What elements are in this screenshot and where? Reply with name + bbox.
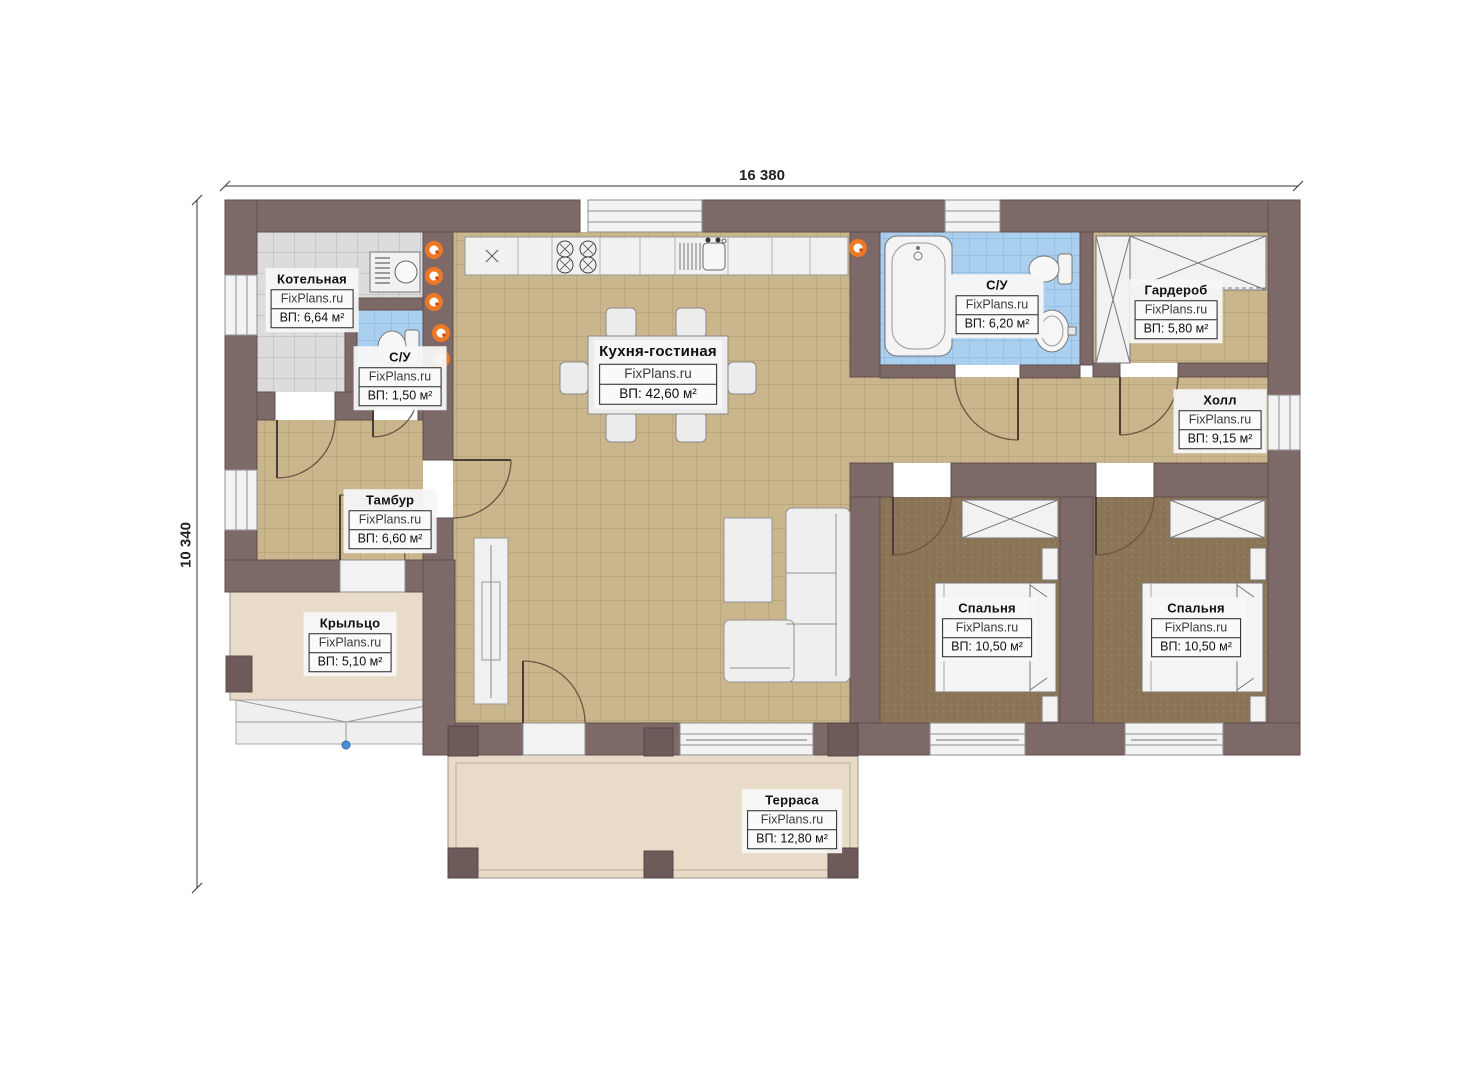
room-info-box: FixPlans.ru ВП: 6,64 м²: [271, 290, 354, 328]
room-area: ВП: 1,50 м²: [360, 387, 441, 405]
nightstand-icon: [1042, 548, 1058, 580]
nightstand-icon: [1250, 696, 1266, 722]
room-area: ВП: 9,15 м²: [1180, 430, 1261, 448]
window-left-vestibule: [225, 470, 257, 530]
chair-icon: [728, 362, 756, 394]
room-name: Спальня: [1151, 600, 1241, 616]
room-label-kitchen-living: Кухня-гостиная FixPlans.ru ВП: 42,60 м²: [594, 340, 722, 409]
chair-icon: [676, 308, 706, 338]
room-brand: FixPlans.ru: [957, 297, 1038, 316]
nightstand-icon: [1042, 696, 1058, 722]
nightstand-icon: [1250, 548, 1266, 580]
entry-door-threshold: [340, 560, 405, 592]
room-brand: FixPlans.ru: [1180, 412, 1261, 431]
room-info-box: FixPlans.ru ВП: 10,50 м²: [942, 619, 1032, 657]
room-brand: FixPlans.ru: [350, 512, 431, 531]
room-label-bathroom: С/У FixPlans.ru ВП: 6,20 м²: [951, 274, 1044, 338]
window-bedroom-2: [1125, 723, 1223, 755]
room-area: ВП: 42,60 м²: [600, 384, 716, 403]
tv-stand-icon: [474, 538, 508, 704]
room-info-box: FixPlans.ru ВП: 6,20 м²: [956, 296, 1039, 334]
bathtub-icon: [885, 236, 952, 356]
riser-icon: [432, 324, 450, 342]
room-label-porch: Крыльцо FixPlans.ru ВП: 5,10 м²: [304, 612, 397, 676]
room-area: ВП: 10,50 м²: [1152, 638, 1240, 656]
room-brand: FixPlans.ru: [1152, 620, 1240, 639]
window-top-bathroom: [945, 200, 1000, 232]
room-brand: FixPlans.ru: [943, 620, 1031, 639]
room-label-boiler: Котельная FixPlans.ru ВП: 6,64 м²: [266, 268, 359, 332]
room-brand: FixPlans.ru: [310, 635, 391, 654]
room-name: С/У: [956, 277, 1039, 293]
room-info-box: FixPlans.ru ВП: 10,50 м²: [1151, 619, 1241, 657]
room-area: ВП: 10,50 м²: [943, 638, 1031, 656]
room-brand: FixPlans.ru: [600, 365, 716, 385]
room-brand: FixPlans.ru: [360, 369, 441, 388]
window-left-boiler: [225, 275, 257, 335]
room-name: Котельная: [271, 271, 354, 287]
riser-icon: [425, 267, 443, 285]
room-brand: FixPlans.ru: [1136, 302, 1217, 321]
room-info-box: FixPlans.ru ВП: 5,80 м²: [1135, 301, 1218, 339]
room-area: ВП: 5,10 м²: [310, 653, 391, 671]
room-name: Терраса: [747, 792, 837, 808]
coffee-table-icon: [724, 518, 772, 602]
chair-icon: [606, 412, 636, 442]
chair-icon: [606, 308, 636, 338]
riser-icon: [425, 293, 443, 311]
room-name: Тамбур: [349, 492, 432, 508]
porch-post: [226, 656, 252, 692]
room-area: ВП: 5,80 м²: [1136, 320, 1217, 338]
room-area: ВП: 6,60 м²: [350, 530, 431, 548]
terrace-door-threshold: [523, 723, 585, 755]
room-name: Холл: [1179, 392, 1262, 408]
room-info-box: FixPlans.ru ВП: 42,60 м²: [599, 364, 717, 405]
room-name: Кухня-гостиная: [599, 343, 717, 362]
room-label-bedroom-2: Спальня FixPlans.ru ВП: 10,50 м²: [1146, 597, 1246, 661]
room-label-hall: Холл FixPlans.ru ВП: 9,15 м²: [1174, 389, 1267, 453]
room-info-box: FixPlans.ru ВП: 6,60 м²: [349, 511, 432, 549]
window-top-kitchen: [588, 200, 702, 232]
floor-plan-page: 16 380 10 340 Котельная FixPlans.ru ВП: …: [0, 0, 1474, 1080]
room-label-vestibule: Тамбур FixPlans.ru ВП: 6,60 м²: [344, 489, 437, 553]
chair-icon: [560, 362, 588, 394]
wardrobe-icon: [962, 500, 1058, 538]
room-info-box: FixPlans.ru ВП: 9,15 м²: [1179, 411, 1262, 449]
chair-icon: [676, 412, 706, 442]
room-label-wardrobe: Гардероб FixPlans.ru ВП: 5,80 м²: [1130, 279, 1223, 343]
room-name: Гардероб: [1135, 282, 1218, 298]
room-brand: FixPlans.ru: [748, 812, 836, 831]
window-bedroom-1: [930, 723, 1025, 755]
room-info-box: FixPlans.ru ВП: 1,50 м²: [359, 368, 442, 406]
room-area: ВП: 12,80 м²: [748, 830, 836, 848]
room-name: С/У: [359, 349, 442, 365]
dimension-height-label: 10 340: [178, 522, 195, 568]
riser-icon: [849, 239, 867, 257]
room-label-bedroom-1: Спальня FixPlans.ru ВП: 10,50 м²: [937, 597, 1037, 661]
step-marker: [342, 741, 350, 749]
sofa-icon: [724, 508, 850, 682]
room-info-box: FixPlans.ru ВП: 12,80 м²: [747, 811, 837, 849]
room-area: ВП: 6,64 м²: [272, 309, 353, 327]
room-label-terrace: Терраса FixPlans.ru ВП: 12,80 м²: [742, 789, 842, 853]
room-info-box: FixPlans.ru ВП: 5,10 м²: [309, 634, 392, 672]
wardrobe-icon: [1170, 500, 1265, 538]
room-label-wc-small: С/У FixPlans.ru ВП: 1,50 м²: [354, 346, 447, 410]
boiler-icon: [370, 252, 420, 292]
room-area: ВП: 6,20 м²: [957, 315, 1038, 333]
room-name: Спальня: [942, 600, 1032, 616]
floor-plan-svg: [0, 0, 1474, 1080]
riser-icon: [425, 241, 443, 259]
room-name: Крыльцо: [309, 615, 392, 631]
room-brand: FixPlans.ru: [272, 291, 353, 310]
window-kitchen-terrace: [680, 723, 813, 755]
window-right-hall: [1268, 395, 1300, 450]
kitchen-counter: [465, 237, 848, 275]
dimension-width-label: 16 380: [739, 167, 785, 184]
